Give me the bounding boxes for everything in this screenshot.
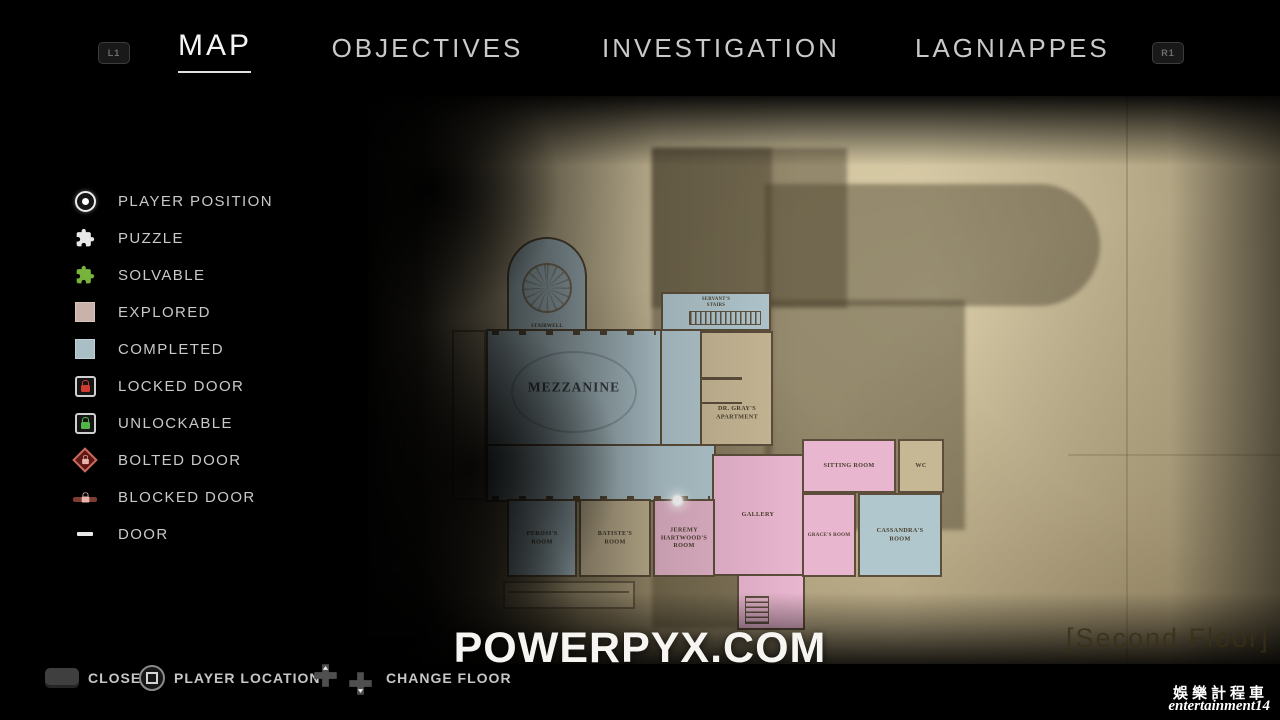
dpad-down-icon[interactable] [347, 670, 374, 697]
paper-fold-vertical [1126, 96, 1128, 664]
legend-item-bolted-door: BOLTED DOOR [72, 449, 273, 471]
stairs-glyph [745, 596, 769, 624]
room-label: JEREMY HARTWOOD'S ROOM [634, 526, 733, 549]
west-porch [452, 330, 486, 500]
legend-label: LOCKED DOOR [118, 378, 244, 395]
top-navigation: L1 MAP OBJECTIVES INVESTIGATION LAGNIAPP… [0, 0, 1280, 96]
locked-door-icon [72, 376, 98, 397]
r1-label: R1 [1161, 48, 1175, 58]
stairs-glyph [689, 311, 761, 325]
wall-pillars [492, 330, 656, 335]
room-graces-room: GRACE'S ROOM [802, 493, 856, 577]
l1-label: L1 [108, 48, 121, 58]
room-label: DR. GRAY'S APARTMENT [687, 405, 786, 421]
legend-item-completed: COMPLETED [72, 338, 273, 360]
puzzle-icon [72, 228, 98, 248]
map-screen: STAIRWELL SERVANT'S STAIRS MEZZANINE DR.… [0, 0, 1280, 720]
legend-item-explored: EXPLORED [72, 301, 273, 323]
paper-fold-horizontal [1068, 454, 1280, 456]
legend-label: EXPLORED [118, 304, 211, 321]
unexplored-area-shadow [765, 184, 1100, 306]
legend-item-puzzle: PUZZLE [72, 227, 273, 249]
player-position-icon [72, 191, 98, 212]
legend-label: BLOCKED DOOR [118, 489, 256, 506]
room-jeremy-hartwoods-room: JEREMY HARTWOOD'S ROOM [653, 499, 715, 577]
room-label: CASSANDRA'S ROOM [850, 527, 949, 543]
explored-swatch-icon [72, 302, 98, 322]
room-mezzanine: MEZZANINE [486, 329, 662, 446]
tab-map[interactable]: MAP [170, 29, 260, 63]
player-location-button[interactable]: PLAYER LOCATION [174, 670, 320, 686]
room-label: STAIRWELL [507, 323, 587, 329]
tab-objectives[interactable]: OBJECTIVES [330, 33, 525, 64]
tab-investigation[interactable]: INVESTIGATION [602, 33, 837, 64]
dpad-up-icon[interactable] [312, 662, 339, 689]
room-dr-grays-apartment: DR. GRAY'S APARTMENT [700, 331, 773, 446]
touchpad-button-icon[interactable] [45, 668, 79, 688]
legend-item-solvable: SOLVABLE [72, 264, 273, 286]
legend-item-door: DOOR [72, 523, 273, 545]
tab-lagniappes-label: LAGNIAPPES [915, 33, 1110, 63]
room-wc: WC [898, 439, 944, 493]
room-servants-stairs: SERVANT'S STAIRS [661, 292, 771, 331]
bolted-door-icon [72, 448, 98, 472]
legend-item-blocked-door: BLOCKED DOOR [72, 486, 273, 508]
legend-label: SOLVABLE [118, 267, 205, 284]
tab-objectives-label: OBJECTIVES [332, 33, 524, 63]
room-label: GALLERY [708, 511, 807, 519]
floor-name-label: [Second Floor] [1066, 623, 1270, 654]
square-button-icon[interactable] [139, 665, 165, 691]
active-tab-underline [178, 71, 251, 73]
room-corridor-south [486, 444, 716, 502]
tab-lagniappes[interactable]: LAGNIAPPES [915, 33, 1105, 64]
shoulder-button-l1[interactable]: L1 [98, 42, 130, 64]
tab-map-label: MAP [178, 29, 252, 62]
room-corridor-east [660, 329, 702, 448]
terrace-balcony [503, 581, 635, 609]
unlockable-door-icon [72, 413, 98, 434]
legend-label: DOOR [118, 526, 169, 543]
legend-label: BOLTED DOOR [118, 452, 241, 469]
tab-investigation-label: INVESTIGATION [602, 33, 840, 63]
map-legend: PLAYER POSITION PUZZLE SOLVABLE EXPLORED… [72, 190, 273, 545]
channel-watermark-handle: entertainment14 [1168, 698, 1270, 715]
player-position-marker [673, 496, 682, 505]
powerpyx-watermark: POWERPYX.COM [454, 624, 827, 673]
completed-swatch-icon [72, 339, 98, 359]
spiral-staircase-glyph [522, 263, 572, 313]
solvable-puzzle-icon [72, 265, 98, 285]
room-label: MEZZANINE [494, 379, 654, 396]
legend-item-unlockable: UNLOCKABLE [72, 412, 273, 434]
legend-label: COMPLETED [118, 341, 224, 358]
room-cassandras-room: CASSANDRA'S ROOM [858, 493, 942, 577]
room-label: SERVANT'S STAIRS [678, 296, 755, 308]
legend-item-locked-door: LOCKED DOOR [72, 375, 273, 397]
door-icon [72, 532, 98, 536]
blocked-door-icon [72, 485, 98, 509]
legend-label: PLAYER POSITION [118, 193, 273, 210]
legend-label: PUZZLE [118, 230, 184, 247]
legend-item-player-position: PLAYER POSITION [72, 190, 273, 212]
room-gallery: GALLERY [712, 454, 804, 576]
room-label: WC [871, 462, 970, 470]
legend-label: UNLOCKABLE [118, 415, 233, 432]
room-stairwell: STAIRWELL [507, 237, 587, 332]
close-button[interactable]: CLOSE [88, 670, 141, 686]
room-gallery-extension [737, 574, 805, 630]
shoulder-button-r1[interactable]: R1 [1152, 42, 1184, 64]
